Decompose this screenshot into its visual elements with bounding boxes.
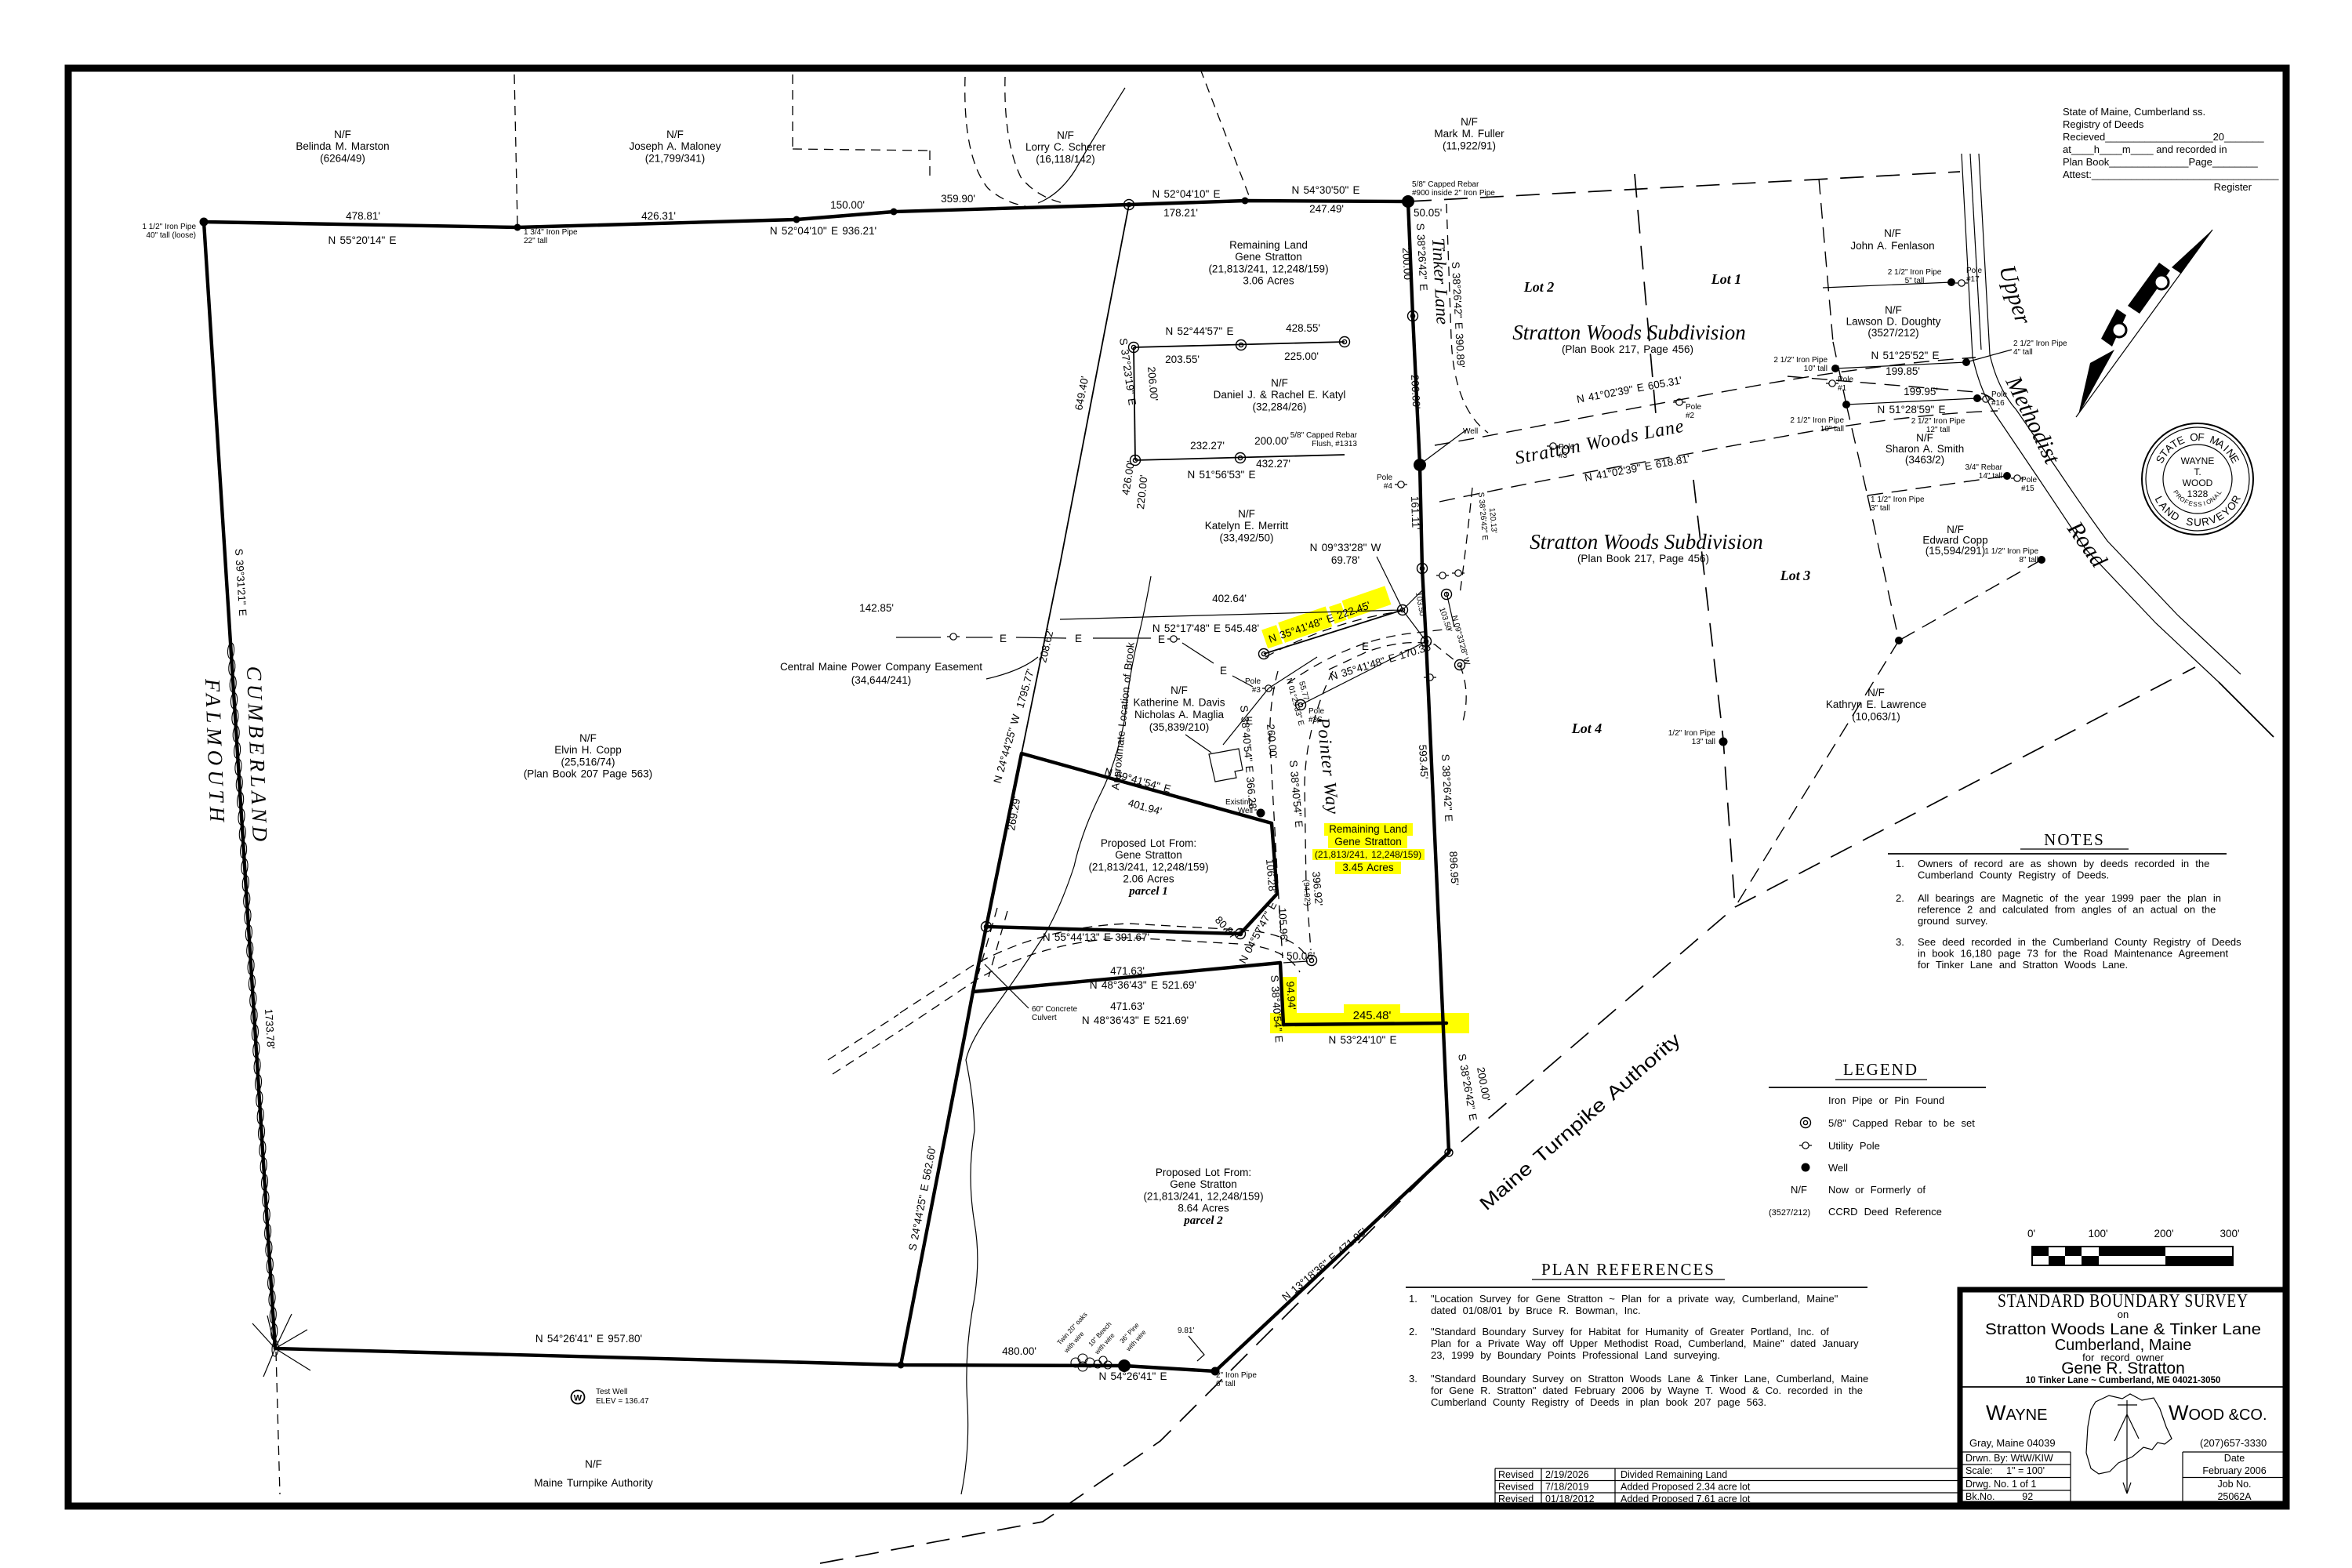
svg-text:parcel 1: parcel 1 bbox=[1127, 885, 1168, 898]
svg-text:200.00': 200.00' bbox=[1409, 374, 1422, 409]
svg-text:John A. Fenlason: John A. Fenlason bbox=[1850, 240, 1934, 252]
svg-text:0': 0' bbox=[2027, 1228, 2035, 1240]
svg-text:for Gene R. Stratton" dated Fe: for Gene R. Stratton" dated February 200… bbox=[1431, 1385, 1863, 1396]
svg-text:(21,799/341): (21,799/341) bbox=[645, 152, 706, 164]
svg-text:W: W bbox=[574, 1394, 583, 1403]
svg-text:1/2" Iron Pipe: 1/2" Iron Pipe bbox=[1668, 729, 1716, 738]
svg-text:N 52°17'48" E 545.48': N 52°17'48" E 545.48' bbox=[1152, 622, 1259, 634]
svg-text:23, 1999 by Boundary Points Pr: 23, 1999 by Boundary Points Professional… bbox=[1431, 1349, 1720, 1361]
svg-text:PLAN REFERENCES: PLAN REFERENCES bbox=[1541, 1260, 1715, 1279]
svg-text:N/F: N/F bbox=[666, 129, 684, 140]
svg-text:9.81': 9.81' bbox=[1178, 1327, 1194, 1335]
svg-text:1 1/2" Iron Pipe: 1 1/2" Iron Pipe bbox=[1871, 495, 1925, 504]
svg-text:N 09°33'28" W: N 09°33'28" W bbox=[1310, 542, 1381, 554]
svg-text:14" tall: 14" tall bbox=[1979, 472, 2002, 481]
svg-text:142.85': 142.85' bbox=[859, 602, 894, 614]
svg-text:(6264/49): (6264/49) bbox=[320, 152, 365, 164]
svg-text:#15: #15 bbox=[2021, 485, 2034, 493]
svg-text:Gene Stratton: Gene Stratton bbox=[1334, 836, 1402, 848]
svg-text:Lot 4: Lot 4 bbox=[1571, 720, 1602, 736]
svg-text:Gene Stratton: Gene Stratton bbox=[1115, 849, 1182, 861]
svg-text:(25,516/74): (25,516/74) bbox=[561, 756, 615, 768]
svg-text:3.06 Acres: 3.06 Acres bbox=[1243, 275, 1294, 287]
svg-text:Owners of record are as shown: Owners of record are as shown by deeds r… bbox=[1918, 858, 2209, 869]
svg-text:2.: 2. bbox=[1409, 1326, 1417, 1338]
svg-text:593.45': 593.45' bbox=[1417, 744, 1430, 779]
svg-text:5" tall: 5" tall bbox=[1905, 277, 1925, 285]
svg-text:199.85': 199.85' bbox=[1886, 365, 1920, 377]
svg-text:N/F: N/F bbox=[1057, 129, 1074, 141]
svg-text:428.55': 428.55' bbox=[1286, 322, 1320, 334]
svg-text:"Standard Boundary Survey for: "Standard Boundary Survey for Habitat fo… bbox=[1431, 1326, 1829, 1338]
svg-text:199.95': 199.95' bbox=[1904, 386, 1938, 397]
svg-text:N/F: N/F bbox=[1271, 377, 1288, 389]
svg-text:reference 2 and calculated fro: reference 2 and calculated from angles o… bbox=[1918, 904, 2216, 916]
svg-text:69.78': 69.78' bbox=[1331, 554, 1359, 566]
svg-text:Scale: 1" = 100': Scale: 1" = 100' bbox=[1965, 1465, 2045, 1476]
svg-text:Stratton Woods Lane & Tinker L: Stratton Woods Lane & Tinker Lane bbox=[1985, 1321, 2261, 1338]
svg-text:(21,813/241, 12,248/159): (21,813/241, 12,248/159) bbox=[1208, 263, 1328, 274]
svg-text:1.: 1. bbox=[1896, 858, 1904, 869]
svg-text:Gene Stratton: Gene Stratton bbox=[1235, 251, 1302, 263]
svg-text:Now or Formerly of: Now or Formerly of bbox=[1828, 1184, 1926, 1196]
svg-text:432.27': 432.27' bbox=[1256, 458, 1290, 470]
svg-text:3" tall: 3" tall bbox=[1871, 504, 1890, 513]
svg-text:Attest:_______________________: Attest:_________________________________ bbox=[2063, 169, 2279, 180]
svg-text:Revised: Revised bbox=[1498, 1469, 1534, 1480]
svg-text:N 48°36'43" E 521.69': N 48°36'43" E 521.69' bbox=[1082, 1014, 1189, 1026]
svg-text:1328: 1328 bbox=[2187, 488, 2209, 499]
svg-text:LEGEND: LEGEND bbox=[1843, 1060, 1918, 1079]
svg-text:Mark M. Fuller: Mark M. Fuller bbox=[1434, 128, 1504, 140]
svg-text:#2: #2 bbox=[1686, 412, 1695, 420]
svg-text:2/19/2026: 2/19/2026 bbox=[1545, 1469, 1589, 1480]
svg-text:#3S: #3S bbox=[1308, 716, 1323, 724]
svg-text:Pole: Pole bbox=[2021, 476, 2037, 485]
svg-text:#1: #1 bbox=[1838, 384, 1847, 393]
svg-text:Pole: Pole bbox=[1377, 474, 1392, 482]
svg-text:N/F: N/F bbox=[1885, 304, 1902, 316]
svg-text:Proposed Lot From:: Proposed Lot From: bbox=[1156, 1167, 1251, 1178]
svg-text:Maine Turnpike Authority: Maine Turnpike Authority bbox=[534, 1477, 653, 1489]
svg-text:Flush, #1313: Flush, #1313 bbox=[1312, 440, 1357, 448]
svg-text:N 52°04'10" E: N 52°04'10" E bbox=[1152, 188, 1220, 200]
svg-text:Plan for a Private Way off Upp: Plan for a Private Way off Upper Methodi… bbox=[1431, 1338, 1859, 1349]
svg-text:Pole: Pole bbox=[1966, 267, 1982, 275]
svg-text:parcel 2: parcel 2 bbox=[1182, 1214, 1223, 1227]
svg-text:N/F: N/F bbox=[1884, 227, 1901, 239]
svg-text:6" tall: 6" tall bbox=[1216, 1380, 1236, 1388]
svg-text:(207)657-3330: (207)657-3330 bbox=[2200, 1437, 2267, 1449]
svg-text:Nicholas A. Maglia: Nicholas A. Maglia bbox=[1134, 709, 1225, 720]
svg-text:at____h____m____ and recorded: at____h____m____ and recorded in bbox=[2063, 143, 2227, 155]
svg-text:F: F bbox=[2198, 431, 2205, 444]
svg-text:Elvin H. Copp: Elvin H. Copp bbox=[554, 744, 622, 756]
svg-text:Sharon A. Smith: Sharon A. Smith bbox=[1886, 443, 1965, 455]
svg-text:5/8" Capped Rebar: 5/8" Capped Rebar bbox=[1290, 431, 1358, 440]
svg-text:1 1/2" Iron Pipe: 1 1/2" Iron Pipe bbox=[142, 223, 196, 231]
svg-text:All bearings are Magnetic of t: All bearings are Magnetic of the year 19… bbox=[1918, 892, 2221, 904]
svg-text:(3527/212): (3527/212) bbox=[1867, 327, 1918, 339]
svg-text:Cumberland County Registry of: Cumberland County Registry of Deeds in p… bbox=[1431, 1396, 1766, 1408]
svg-text:(21,813/241, 12,248/159): (21,813/241, 12,248/159) bbox=[1143, 1190, 1263, 1202]
svg-text:Bk.No. 92: Bk.No. 92 bbox=[1965, 1491, 2033, 1502]
svg-text:(3463/2): (3463/2) bbox=[1905, 454, 1944, 466]
svg-text:50.05': 50.05' bbox=[1414, 207, 1442, 219]
svg-text:Lawson D. Doughty: Lawson D. Doughty bbox=[1846, 316, 1941, 328]
svg-text:01/18/2012: 01/18/2012 bbox=[1545, 1494, 1595, 1504]
svg-text:dated 01/08/01 by Bruce R. Bow: dated 01/08/01 by Bruce R. Bowman, Inc. bbox=[1431, 1305, 1641, 1316]
svg-text:232.27': 232.27' bbox=[1190, 440, 1225, 452]
svg-text:N 51°25'52" E: N 51°25'52" E bbox=[1871, 350, 1939, 361]
svg-text:8.64 Acres: 8.64 Acres bbox=[1178, 1203, 1229, 1214]
svg-text:25062A: 25062A bbox=[2217, 1491, 2252, 1502]
svg-text:in book 16,180 page 73 for the: in book 16,180 page 73 for the Road Main… bbox=[1918, 948, 2228, 960]
svg-text:426.31': 426.31' bbox=[641, 210, 676, 222]
svg-text:Added Proposed 7.61 acre lot: Added Proposed 7.61 acre lot bbox=[1621, 1494, 1751, 1504]
svg-text:N 48°36'43" E 521.69': N 48°36'43" E 521.69' bbox=[1090, 979, 1196, 991]
svg-text:Lot 2: Lot 2 bbox=[1523, 279, 1555, 295]
svg-text:4" tall: 4" tall bbox=[2013, 348, 2033, 357]
svg-text:2 1/2" Iron Pipe: 2 1/2" Iron Pipe bbox=[2013, 339, 2067, 348]
svg-text:Pole: Pole bbox=[1559, 443, 1574, 452]
svg-text:2" Iron Pipe: 2" Iron Pipe bbox=[1216, 1371, 1257, 1380]
svg-text:200': 200' bbox=[2154, 1228, 2173, 1240]
svg-text:1 1/2" Iron Pipe: 1 1/2" Iron Pipe bbox=[1984, 547, 2038, 556]
svg-text:E: E bbox=[1220, 665, 1227, 677]
svg-text:40" tall (loose): 40" tall (loose) bbox=[146, 231, 196, 240]
svg-text:1 3/4" Iron Pipe: 1 3/4" Iron Pipe bbox=[524, 228, 578, 237]
svg-text:Joseph A. Maloney: Joseph A. Maloney bbox=[629, 140, 720, 152]
svg-text:N/F: N/F bbox=[585, 1458, 602, 1470]
svg-text:22" tall: 22" tall bbox=[524, 237, 547, 245]
svg-text:Drwg. No. 1 of 1: Drwg. No. 1 of 1 bbox=[1965, 1479, 2036, 1490]
svg-text:N/F: N/F bbox=[334, 129, 351, 140]
svg-text:Pole: Pole bbox=[1245, 677, 1261, 686]
svg-text:Daniel J. & Rachel E. Katyl: Daniel J. & Rachel E. Katyl bbox=[1214, 389, 1346, 401]
svg-text:N/F: N/F bbox=[1791, 1184, 1807, 1196]
svg-text:Pole: Pole bbox=[1686, 403, 1701, 412]
svg-text:Gene R. Stratton: Gene R. Stratton bbox=[2061, 1359, 2185, 1377]
svg-text:Register: Register bbox=[2214, 181, 2252, 193]
svg-text:WAYNE: WAYNE bbox=[2181, 456, 2215, 466]
svg-text:(15,594/291): (15,594/291) bbox=[1926, 545, 1986, 557]
svg-text:Registry of Deeds: Registry of Deeds bbox=[2063, 118, 2144, 130]
svg-text:(94.92'): (94.92') bbox=[1301, 880, 1312, 906]
svg-text:Central Maine Power Company Ea: Central Maine Power Company Easement bbox=[780, 661, 982, 673]
svg-text:3.45 Acres: 3.45 Acres bbox=[1342, 862, 1394, 873]
svg-text:(Plan Book 217, Page 456): (Plan Book 217, Page 456) bbox=[1562, 343, 1693, 355]
svg-text:Proposed Lot From:: Proposed Lot From: bbox=[1101, 837, 1196, 849]
svg-text:Remaining Land: Remaining Land bbox=[1329, 823, 1407, 835]
svg-text:Gene Stratton: Gene Stratton bbox=[1170, 1178, 1237, 1190]
svg-text:Utility Pole: Utility Pole bbox=[1828, 1140, 1880, 1152]
svg-text:Revised: Revised bbox=[1498, 1482, 1534, 1493]
svg-text:480.00': 480.00' bbox=[1002, 1345, 1036, 1357]
svg-text:#3: #3 bbox=[1252, 686, 1261, 695]
svg-text:Stratton Woods Subdivision: Stratton Woods Subdivision bbox=[1512, 321, 1746, 344]
svg-text:N/F: N/F bbox=[1916, 432, 1933, 444]
svg-text:(16,118/142): (16,118/142) bbox=[1036, 153, 1095, 165]
svg-text:State of Maine, Cumberland ss.: State of Maine, Cumberland ss. bbox=[2063, 106, 2205, 118]
svg-text:E: E bbox=[1362, 641, 1369, 652]
svg-text:(33,492/50): (33,492/50) bbox=[1219, 532, 1273, 543]
svg-text:WOOD: WOOD bbox=[2183, 477, 2213, 488]
svg-text:N 52°04'10" E 936.21': N 52°04'10" E 936.21' bbox=[770, 225, 877, 237]
svg-text:60" Concrete: 60" Concrete bbox=[1032, 1005, 1077, 1014]
svg-text:300': 300' bbox=[2220, 1228, 2239, 1240]
svg-text:for Tinker Lane and Stratton W: for Tinker Lane and Stratton Woods Lane. bbox=[1918, 959, 2128, 971]
svg-text:N 55°20'14" E: N 55°20'14" E bbox=[328, 234, 396, 246]
svg-text:200.00': 200.00' bbox=[1400, 247, 1414, 282]
svg-text:Culvert: Culvert bbox=[1032, 1014, 1057, 1022]
svg-text:Katherine M. Davis: Katherine M. Davis bbox=[1133, 697, 1225, 709]
svg-text:Existing: Existing bbox=[1225, 798, 1253, 807]
svg-text:Recieved___________________20_: Recieved___________________20_______ bbox=[2063, 131, 2264, 143]
svg-text:N 51°56'53" E: N 51°56'53" E bbox=[1187, 469, 1255, 481]
svg-text:Remaining Land: Remaining Land bbox=[1229, 239, 1308, 251]
svg-text:161.11': 161.11' bbox=[1409, 496, 1421, 530]
svg-text:NOTES: NOTES bbox=[2044, 830, 2105, 849]
svg-text:10 Tinker Lane ~ Cumberland, M: 10 Tinker Lane ~ Cumberland, ME 04021-30… bbox=[2026, 1376, 2221, 1385]
svg-text:(21,813/241, 12,248/159): (21,813/241, 12,248/159) bbox=[1088, 861, 1208, 873]
svg-text:(10,063/1): (10,063/1) bbox=[1852, 710, 1900, 722]
svg-text:N/F: N/F bbox=[1171, 684, 1188, 696]
svg-text:100': 100' bbox=[2088, 1228, 2107, 1240]
svg-text:Belinda M. Marston: Belinda M. Marston bbox=[296, 140, 389, 152]
svg-text:E: E bbox=[1158, 633, 1165, 645]
svg-text:Job No.: Job No. bbox=[2217, 1479, 2251, 1490]
svg-text:Well: Well bbox=[1828, 1162, 1848, 1174]
svg-text:February 2006: February 2006 bbox=[2202, 1465, 2266, 1476]
svg-text:Revised: Revised bbox=[1498, 1494, 1534, 1504]
svg-text:T.: T. bbox=[2194, 466, 2201, 477]
svg-text:N/F: N/F bbox=[579, 732, 597, 744]
svg-text:(11,922/91): (11,922/91) bbox=[1443, 140, 1496, 151]
svg-text:Gray, Maine 04039: Gray, Maine 04039 bbox=[1969, 1437, 2056, 1449]
svg-text:3.: 3. bbox=[1409, 1373, 1417, 1385]
svg-text:Drwn. By: WtW/KIW: Drwn. By: WtW/KIW bbox=[1965, 1453, 2053, 1464]
svg-text:E: E bbox=[1075, 633, 1082, 644]
svg-text:471.63': 471.63' bbox=[1110, 965, 1145, 977]
svg-text:ground survey.: ground survey. bbox=[1918, 915, 1988, 927]
svg-text:#900 inside 2" Iron Pipe: #900 inside 2" Iron Pipe bbox=[1412, 189, 1495, 198]
svg-text:Katelyn E. Merritt: Katelyn E. Merritt bbox=[1205, 520, 1289, 532]
svg-text:359.90': 359.90' bbox=[941, 193, 975, 205]
svg-text:N/F: N/F bbox=[1461, 116, 1478, 128]
svg-text:(34,644/241): (34,644/241) bbox=[851, 674, 912, 686]
svg-text:S: S bbox=[2198, 501, 2202, 508]
svg-text:N/F: N/F bbox=[1238, 508, 1255, 520]
svg-text:#16: #16 bbox=[1991, 399, 2005, 408]
svg-text:(21,813/241, 12,248/159): (21,813/241, 12,248/159) bbox=[1315, 849, 1421, 860]
svg-text:3.: 3. bbox=[1896, 936, 1904, 948]
svg-text:Added Proposed 2.34 acre lot: Added Proposed 2.34 acre lot bbox=[1621, 1482, 1751, 1493]
svg-text:Divided Remaining Land: Divided Remaining Land bbox=[1621, 1469, 1727, 1480]
svg-text:896.95': 896.95' bbox=[1447, 851, 1461, 886]
svg-text:Iron Pipe or Pin Found: Iron Pipe or Pin Found bbox=[1828, 1094, 1944, 1106]
svg-text:1.: 1. bbox=[1409, 1293, 1417, 1305]
svg-text:on: on bbox=[2118, 1308, 2129, 1320]
svg-text:5/8" Capped Rebar to be set: 5/8" Capped Rebar to be set bbox=[1828, 1117, 1975, 1129]
svg-text:(35,839/210): (35,839/210) bbox=[1149, 721, 1210, 733]
svg-text:105.96': 105.96' bbox=[1276, 907, 1290, 942]
svg-text:ELEV = 136.47: ELEV = 136.47 bbox=[596, 1397, 649, 1406]
svg-text:(Plan Book 217, Page 456): (Plan Book 217, Page 456) bbox=[1577, 553, 1709, 564]
svg-text:Lot 3: Lot 3 bbox=[1780, 568, 1811, 583]
svg-text:2 1/2" Iron Pipe: 2 1/2" Iron Pipe bbox=[1888, 268, 1942, 277]
svg-text:Stratton Woods Subdivision: Stratton Woods Subdivision bbox=[1530, 530, 1763, 554]
svg-text:2 1/2" Iron Pipe: 2 1/2" Iron Pipe bbox=[1773, 356, 1828, 365]
svg-text:2 1/2" Iron Pipe: 2 1/2" Iron Pipe bbox=[1790, 416, 1844, 425]
svg-text:Test Well: Test Well bbox=[596, 1388, 627, 1396]
svg-text:13" tall: 13" tall bbox=[1692, 738, 1715, 746]
svg-text:Cumberland County Registry of: Cumberland County Registry of Deeds. bbox=[1918, 869, 2109, 881]
svg-text:Plan Book______________Page___: Plan Book______________Page________ bbox=[2063, 156, 2258, 168]
svg-text:Date: Date bbox=[2224, 1453, 2245, 1464]
svg-text:N 54°26'41" E: N 54°26'41" E bbox=[1098, 1370, 1167, 1382]
svg-text:10" tall: 10" tall bbox=[1820, 425, 1844, 434]
svg-text:3/4" Rebar: 3/4" Rebar bbox=[1965, 463, 2003, 472]
svg-text:See deed recorded in the Cumbe: See deed recorded in the Cumberland Coun… bbox=[1918, 936, 2241, 948]
svg-text:178.21': 178.21' bbox=[1163, 207, 1198, 219]
svg-text:Pole: Pole bbox=[1308, 707, 1324, 716]
svg-text:N 51°28'59" E: N 51°28'59" E bbox=[1877, 404, 1945, 416]
svg-text:10" tall: 10" tall bbox=[1804, 365, 1828, 373]
svg-text:478.81': 478.81' bbox=[346, 210, 380, 222]
svg-text:E: E bbox=[1000, 633, 1007, 644]
svg-text:2 1/2" Iron Pipe: 2 1/2" Iron Pipe bbox=[1911, 417, 1965, 426]
svg-text:150.00': 150.00' bbox=[830, 199, 865, 211]
svg-text:"Location Survey for Gene Stra: "Location Survey for Gene Stratton ~ Pla… bbox=[1431, 1293, 1838, 1305]
svg-text:94.94': 94.94' bbox=[1284, 981, 1298, 1010]
svg-text:Kathryn E. Lawrence: Kathryn E. Lawrence bbox=[1826, 699, 1926, 710]
svg-text:CCRD Deed Reference: CCRD Deed Reference bbox=[1828, 1206, 1942, 1218]
svg-text:200.00': 200.00' bbox=[1254, 435, 1289, 447]
svg-text:N/F: N/F bbox=[1867, 687, 1885, 699]
svg-text:471.63': 471.63' bbox=[1110, 1000, 1145, 1012]
svg-text:203.55': 203.55' bbox=[1165, 354, 1200, 365]
svg-text:N 53°24'10" E: N 53°24'10" E bbox=[1328, 1034, 1396, 1046]
svg-text:2.06 Acres: 2.06 Acres bbox=[1123, 873, 1174, 885]
svg-text:(32,284/26): (32,284/26) bbox=[1252, 401, 1306, 412]
svg-text:Well: Well bbox=[1463, 427, 1478, 436]
svg-text:N 52°44'57" E: N 52°44'57" E bbox=[1165, 325, 1233, 337]
svg-text:1733.78': 1733.78' bbox=[263, 1008, 277, 1049]
svg-text:"Standard Boundary Survey on S: "Standard Boundary Survey on Stratton Wo… bbox=[1431, 1373, 1868, 1385]
svg-text:N 54°26'41" E 957.80': N 54°26'41" E 957.80' bbox=[535, 1333, 642, 1345]
svg-text:N 54°30'50" E: N 54°30'50" E bbox=[1291, 184, 1359, 196]
svg-text:(3527/212): (3527/212) bbox=[1769, 1208, 1810, 1218]
svg-text:Lot 1: Lot 1 bbox=[1711, 271, 1742, 287]
svg-text:#3: #3 bbox=[1559, 452, 1568, 460]
svg-text:5/8" Capped Rebar: 5/8" Capped Rebar bbox=[1412, 180, 1479, 189]
svg-text:(Plan Book 207 Page 563): (Plan Book 207 Page 563) bbox=[524, 768, 652, 780]
svg-text:2.: 2. bbox=[1896, 892, 1904, 904]
svg-text:245.48': 245.48' bbox=[1353, 1009, 1392, 1022]
svg-text:402.64': 402.64' bbox=[1212, 593, 1247, 604]
svg-text:7/18/2019: 7/18/2019 bbox=[1545, 1482, 1589, 1493]
svg-text:50.06': 50.06' bbox=[1287, 950, 1315, 962]
svg-text:225.00': 225.00' bbox=[1284, 350, 1319, 362]
svg-text:Lorry C. Scherer: Lorry C. Scherer bbox=[1025, 141, 1106, 153]
svg-text:247.49': 247.49' bbox=[1309, 203, 1344, 215]
svg-text:#4: #4 bbox=[1384, 482, 1393, 491]
